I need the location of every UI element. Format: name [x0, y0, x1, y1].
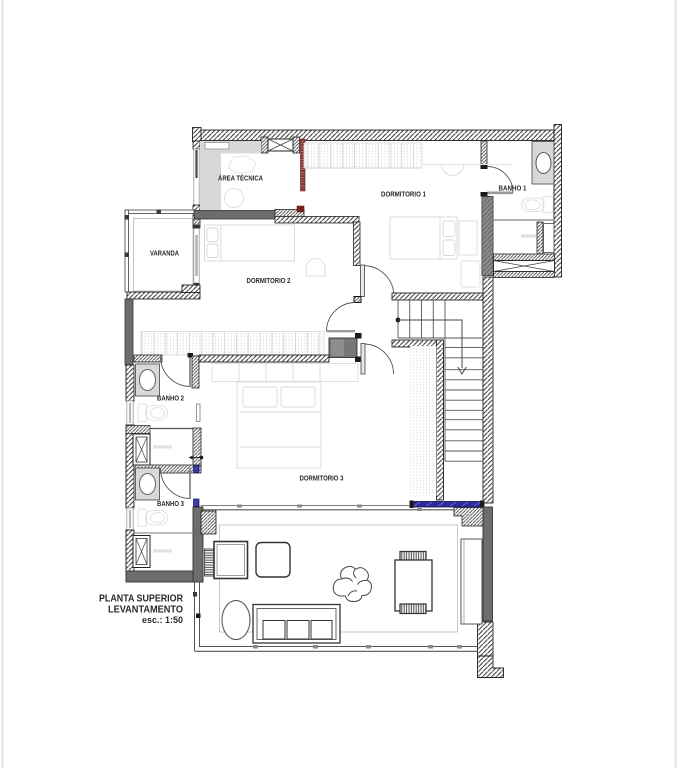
svg-text:PLANTA SUPERIOR: PLANTA SUPERIOR	[99, 594, 184, 605]
svg-text:VARANDA: VARANDA	[150, 251, 179, 258]
svg-text:DORMITORIO 2: DORMITORIO 2	[247, 278, 291, 285]
svg-text:esc.: 1:50: esc.: 1:50	[142, 615, 183, 625]
svg-text:LEVANTAMENTO: LEVANTAMENTO	[108, 605, 183, 616]
svg-text:BANHO 1: BANHO 1	[499, 186, 527, 193]
svg-text:BANHO 3: BANHO 3	[157, 501, 184, 508]
svg-text:DORMITORIO 1: DORMITORIO 1	[381, 192, 426, 199]
svg-text:DORMITORIO 3: DORMITORIO 3	[300, 476, 344, 483]
svg-text:ÁREA TÉCNICA: ÁREA TÉCNICA	[218, 174, 263, 183]
svg-text:BANHO 2: BANHO 2	[157, 396, 184, 403]
